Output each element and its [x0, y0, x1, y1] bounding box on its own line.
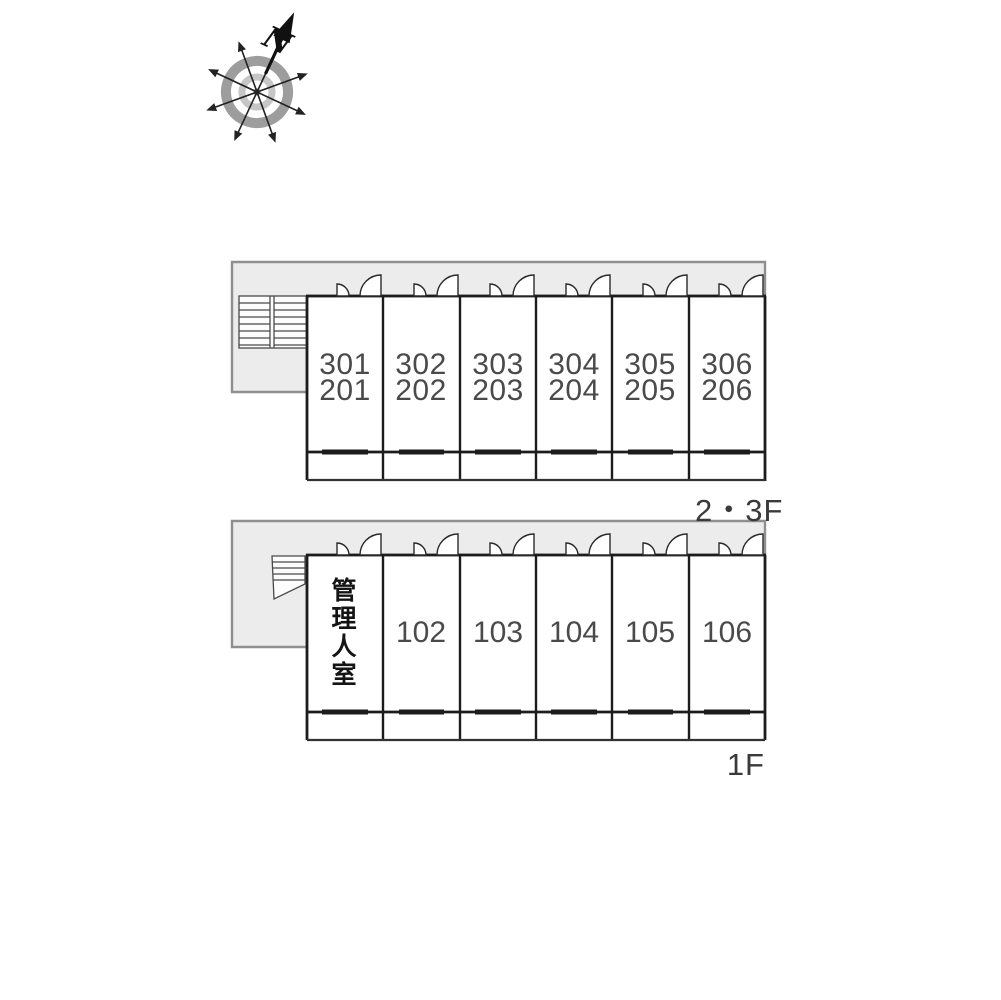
room-label: 304204 [534, 352, 614, 404]
room-label: 306206 [687, 352, 767, 404]
floor-plan-drawing: N [0, 0, 1001, 1000]
room-walls [306, 555, 766, 740]
room-label: 105 [610, 619, 690, 646]
room-label: 302202 [381, 352, 461, 404]
floor-plan-page: N [0, 0, 1001, 1000]
room-label: 103 [458, 619, 538, 646]
staircase-icon [239, 296, 307, 348]
floor-label-1f: 1F [665, 747, 765, 783]
compass-rose-icon: N [185, 0, 343, 164]
room-label: 104 [534, 619, 614, 646]
floor-label-2-3f: 2・3F [695, 485, 783, 530]
compass-rays [195, 30, 320, 155]
room-label: 303203 [458, 352, 538, 404]
room-label: 305205 [610, 352, 690, 404]
room-label: 301201 [305, 352, 385, 404]
manager-room-label: 管理人室 [329, 577, 354, 697]
room-label: 102 [381, 619, 461, 646]
room-label: 106 [687, 619, 767, 646]
